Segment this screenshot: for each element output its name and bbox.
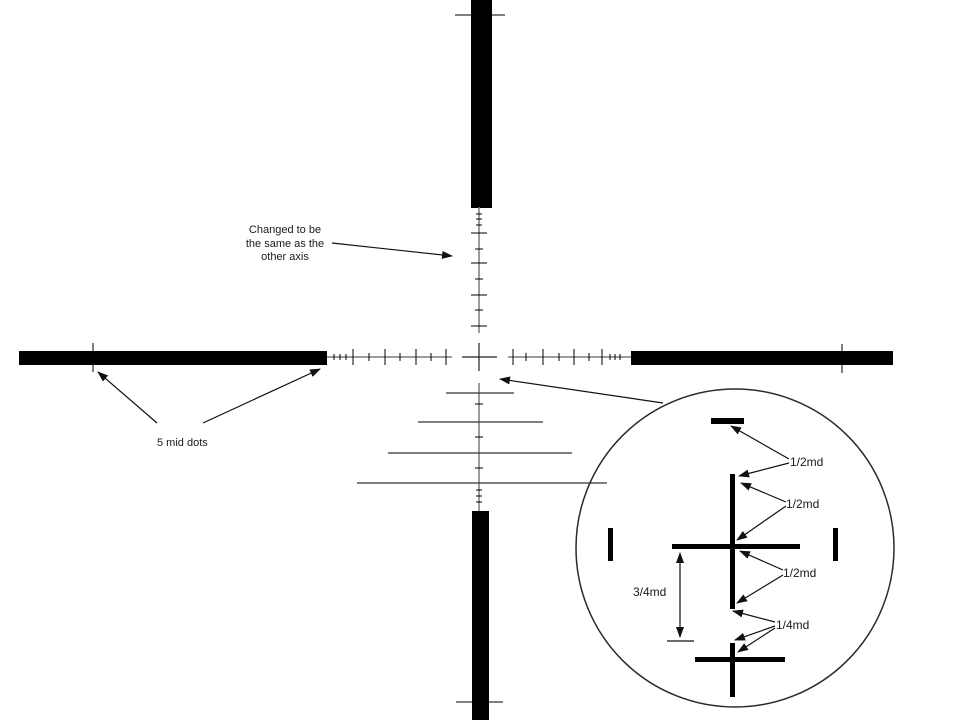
quarter-md-arrow-lower-top <box>735 626 775 640</box>
quarter-md-arrow-lower-cross <box>738 628 775 652</box>
inset-lower-vline <box>730 643 735 697</box>
mid-dots-arrow-left <box>98 372 157 423</box>
inset-lower-hline <box>695 657 785 662</box>
inset-left-tick <box>608 528 613 561</box>
inset-label-half-md-1: 1/2md <box>790 455 823 469</box>
axis-note-line-3: other axis <box>237 251 333 265</box>
half-md-3-arrow-cross <box>740 551 783 570</box>
left-bar <box>19 351 327 365</box>
inset-label-half-md-2: 1/2md <box>786 497 819 511</box>
mid-dots-note: 5 mid dots <box>157 437 208 451</box>
slide-canvas: Changed to be the same as the other axis… <box>0 0 960 720</box>
inset-label-three-quarter-md: 3/4md <box>633 585 666 599</box>
axis-note-line-2: the same as the <box>237 238 333 252</box>
axis-note: Changed to be the same as the other axis <box>237 224 333 265</box>
mid-dots-arrow-right <box>203 369 320 423</box>
half-md-3-arrow-line-bottom <box>737 575 783 603</box>
half-md-2-arrow-cross <box>737 506 786 540</box>
inset-label-quarter-md: 1/4md <box>776 618 809 632</box>
right-bar <box>631 351 893 365</box>
half-md-1-arrow-top-bar <box>731 426 789 459</box>
half-md-1-arrow-line-top <box>739 463 789 476</box>
half-md-2-arrow-line-top <box>741 483 786 502</box>
quarter-md-arrow-line-bottom <box>733 611 775 622</box>
inset-pointer-arrow <box>500 379 663 403</box>
inset-right-tick <box>833 528 838 561</box>
inset-label-half-md-3: 1/2md <box>783 566 816 580</box>
inset-top-bar <box>711 418 744 424</box>
bottom-bar <box>472 511 489 720</box>
axis-note-arrow <box>332 243 452 256</box>
inset-cross-hline <box>672 544 800 549</box>
axis-note-line-1: Changed to be <box>237 224 333 238</box>
reticle-diagram <box>0 0 960 720</box>
inset-upper-vline <box>730 474 735 609</box>
top-bar <box>471 0 492 208</box>
